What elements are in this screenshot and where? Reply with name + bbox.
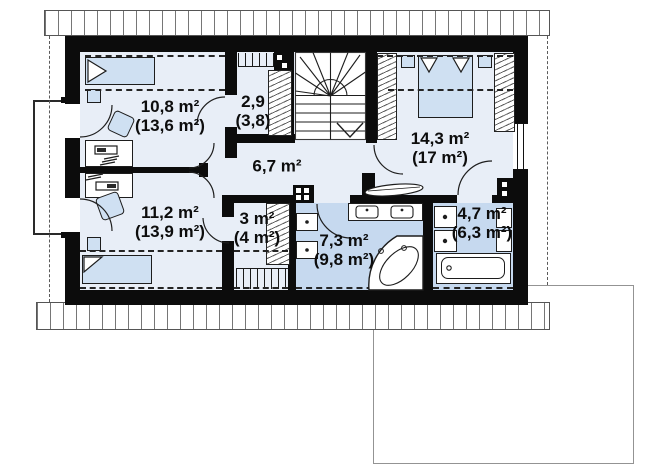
- balcony-anchor-top: [61, 97, 67, 103]
- chimney-right: [497, 178, 514, 203]
- roof-edge-right: [547, 36, 548, 285]
- window-right-glazing: [517, 123, 518, 170]
- balcony: [33, 100, 67, 235]
- bed-single-2: [82, 255, 152, 284]
- roof-eave-bottom: [36, 302, 550, 330]
- room-area-gross: (6,3 m²): [452, 223, 512, 242]
- knee-wall-line: [388, 89, 513, 91]
- toilet: [296, 213, 318, 231]
- wardrobe-master-right: [494, 53, 515, 132]
- knee-wall-line: [296, 287, 423, 289]
- desk-1: [85, 140, 133, 167]
- chimney-flue: [296, 188, 301, 193]
- room-label-bedroom-2: 11,2 m² (13,9 m²): [135, 203, 205, 241]
- room-area: 3 m²: [234, 209, 280, 228]
- chimney-flue: [502, 191, 507, 196]
- room-area: 4,7 m²: [452, 204, 512, 223]
- window-right-glazing-2: [523, 123, 524, 170]
- room-area: 7,3 m²: [314, 231, 374, 250]
- room-area: 2,9: [236, 92, 271, 111]
- hanger-rail-closet: [236, 268, 288, 289]
- room-area: 10,8 m²: [135, 97, 205, 116]
- room-label-bathroom-small: 4,7 m² (6,3 m²): [452, 204, 512, 242]
- roof-eave-top: [44, 10, 550, 36]
- wardrobe-master-left: [377, 53, 397, 140]
- room-area: 6,7 m²: [252, 156, 301, 175]
- chimney-flue: [296, 195, 301, 200]
- room-label-bedroom-1: 10,8 m² (13,6 m²): [135, 97, 205, 135]
- wall-bedroom1-wardrobe-a: [225, 52, 237, 95]
- chimney-top: [274, 52, 290, 72]
- chimney-flue: [304, 188, 309, 193]
- chimney-flue: [282, 63, 287, 68]
- knee-wall-line: [377, 55, 513, 57]
- balcony-anchor-bottom: [61, 232, 67, 238]
- wall-closet-left-b: [222, 241, 234, 290]
- knee-wall-line: [80, 287, 222, 289]
- nightstand-1: [87, 89, 101, 103]
- chimney-flue: [502, 182, 507, 187]
- room-area-gross: (9,8 m²): [314, 250, 374, 269]
- knee-wall-line: [234, 287, 288, 289]
- knee-wall-line: [85, 55, 225, 57]
- bed-double-master: [418, 55, 473, 118]
- room-label-bathroom: 7,3 m² (9,8 m²): [314, 231, 374, 269]
- balcony-door-opening-2: [65, 198, 80, 232]
- knee-wall-line: [234, 250, 288, 252]
- knee-wall-line: [433, 287, 513, 289]
- nightstand-2: [87, 237, 101, 251]
- room-area: 11,2 m²: [135, 203, 205, 222]
- room-label-master-bedroom: 14,3 m² (17 m²): [411, 129, 470, 167]
- chimney-flue: [277, 55, 282, 60]
- roof-edge-left: [49, 36, 50, 302]
- floor-plan: 10,8 m² (13,6 m²) 2,9 (3,8) 14,3 m² (17 …: [0, 0, 655, 476]
- wall-between-baths: [423, 203, 433, 290]
- room-area-gross: (4 m²): [234, 228, 280, 247]
- wardrobe-cabinet-upper: [268, 70, 292, 136]
- bathtub-inner: [441, 257, 505, 279]
- chimney-middle: [293, 185, 314, 203]
- room-label-hallway: 6,7 m²: [252, 156, 301, 175]
- wall-bedroom-divider-end: [199, 163, 208, 177]
- balcony-door-opening-1: [65, 104, 80, 138]
- vanity-counter: [348, 203, 423, 221]
- room-label-wardrobe-upper: 2,9 (3,8): [236, 92, 271, 130]
- hanger-rail-upper: [238, 53, 274, 67]
- room-area-gross: (17 m²): [411, 148, 470, 167]
- wall-closet-left-a: [222, 195, 234, 217]
- knee-wall-line: [80, 250, 222, 252]
- room-area-gross: (13,6 m²): [135, 116, 205, 135]
- wall-stairs-right: [366, 52, 377, 143]
- room-area-gross: (13,9 m²): [135, 222, 205, 241]
- bed-single-1: [85, 57, 155, 85]
- room-area-gross: (3,8): [236, 111, 271, 130]
- room-label-closet: 3 m² (4 m²): [234, 209, 280, 247]
- chimney-flue: [304, 195, 309, 200]
- window-right: [513, 123, 528, 170]
- room-area: 14,3 m²: [411, 129, 470, 148]
- knee-wall-line: [85, 89, 225, 91]
- wall-master-stub: [362, 173, 375, 197]
